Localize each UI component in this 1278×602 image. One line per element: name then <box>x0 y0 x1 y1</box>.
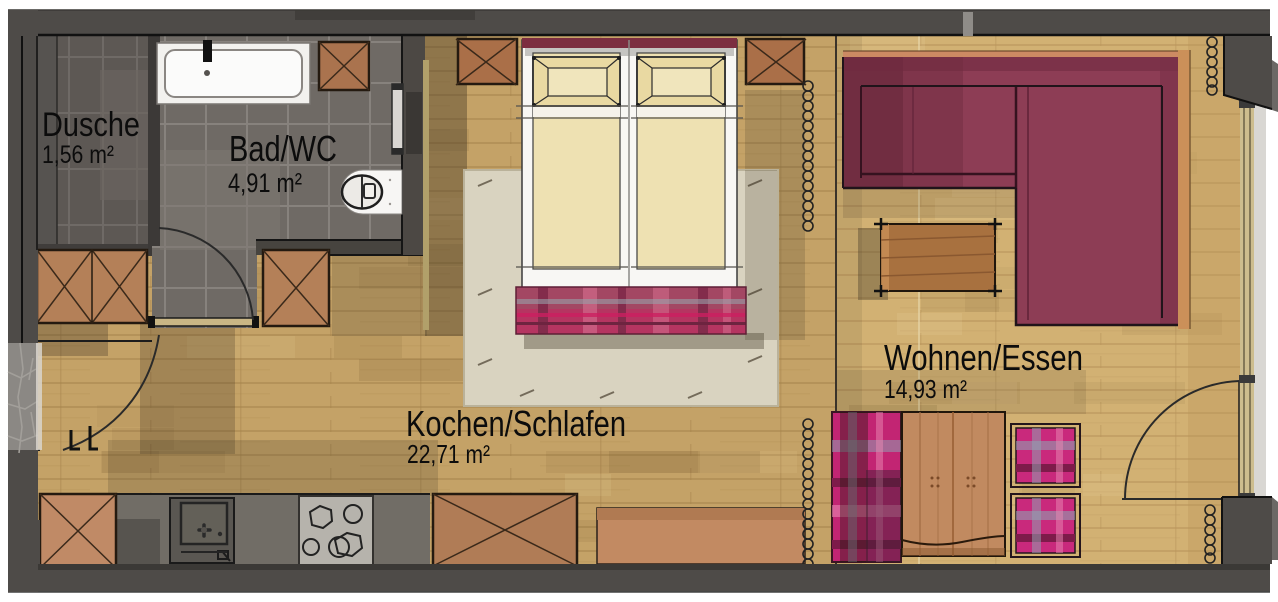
svg-text:22,71 m²: 22,71 m² <box>407 439 490 469</box>
svg-text:Kochen/Schlafen: Kochen/Schlafen <box>406 403 626 444</box>
svg-text:4,91 m²: 4,91 m² <box>228 168 302 198</box>
svg-text:1,56 m²: 1,56 m² <box>42 141 114 169</box>
svg-text:Wohnen/Essen: Wohnen/Essen <box>884 337 1083 378</box>
svg-text:Bad/WC: Bad/WC <box>229 128 337 169</box>
svg-text:14,93 m²: 14,93 m² <box>884 374 967 404</box>
svg-text:Dusche: Dusche <box>42 106 140 144</box>
